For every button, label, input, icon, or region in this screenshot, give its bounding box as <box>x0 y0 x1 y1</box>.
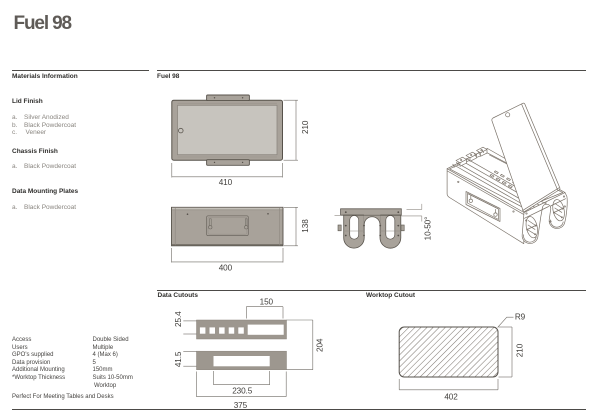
svg-text:25.4: 25.4 <box>174 311 183 327</box>
svg-text:210: 210 <box>301 120 310 134</box>
svg-text:150: 150 <box>260 298 274 307</box>
svg-text:375: 375 <box>234 401 248 410</box>
svg-text:210: 210 <box>516 343 525 357</box>
svg-text:R9: R9 <box>515 312 526 321</box>
svg-text:230.5: 230.5 <box>232 387 253 396</box>
svg-text:402: 402 <box>444 393 458 402</box>
svg-text:138: 138 <box>301 219 310 233</box>
svg-text:400: 400 <box>219 263 233 272</box>
svg-text:10-50°: 10-50° <box>423 217 432 241</box>
svg-text:41.5: 41.5 <box>174 351 183 367</box>
svg-text:204: 204 <box>316 338 325 352</box>
svg-text:410: 410 <box>219 178 233 187</box>
